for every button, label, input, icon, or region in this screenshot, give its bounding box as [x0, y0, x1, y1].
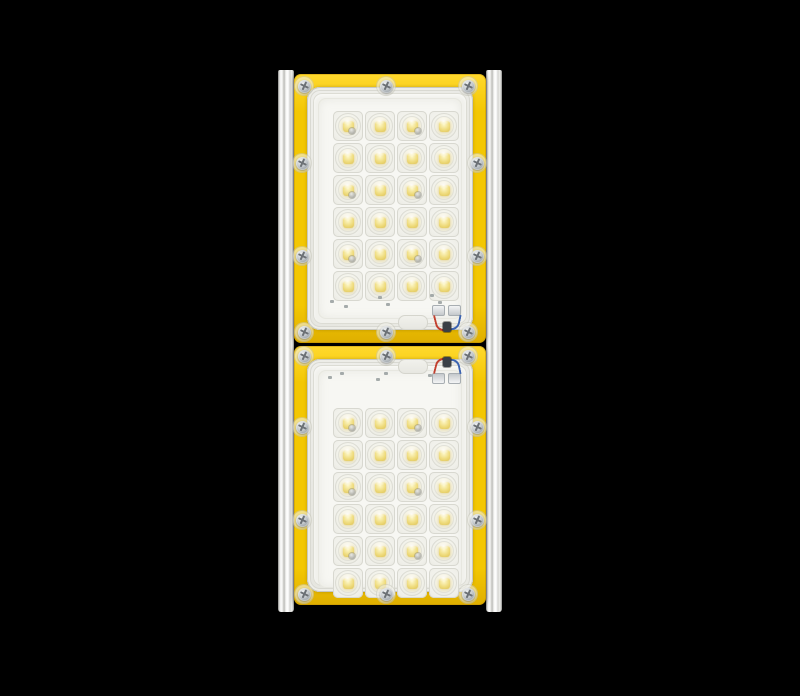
- screw: [459, 323, 477, 341]
- lens-highlight: [341, 213, 354, 221]
- screw: [293, 418, 311, 436]
- screw: [295, 323, 313, 341]
- lens-highlight: [437, 510, 450, 518]
- phillips-screw-icon: [296, 250, 309, 263]
- lens-highlight: [373, 574, 386, 582]
- screw: [377, 347, 395, 365]
- lens-highlight: [437, 149, 450, 157]
- lens-highlight: [405, 574, 418, 582]
- led-lens: [365, 472, 395, 502]
- smd-component: [386, 303, 390, 306]
- lens-highlight: [373, 149, 386, 157]
- lens-highlight: [373, 446, 386, 454]
- led-lens: [333, 504, 363, 534]
- lens-highlight: [405, 277, 418, 285]
- screw: [468, 247, 486, 265]
- screw: [377, 77, 395, 95]
- led-lens: [397, 175, 427, 205]
- screw: [468, 154, 486, 172]
- led-lens: [429, 408, 459, 438]
- led-lens: [333, 568, 363, 598]
- phillips-screw-icon: [380, 326, 393, 339]
- screw: [295, 77, 313, 95]
- lens-highlight: [437, 542, 450, 550]
- led-lens: [429, 175, 459, 205]
- pcb-rivet: [415, 128, 421, 134]
- screw: [295, 347, 313, 365]
- phillips-screw-icon: [471, 157, 484, 170]
- led-lens: [365, 143, 395, 173]
- phillips-screw-icon: [296, 157, 309, 170]
- led-lens: [365, 440, 395, 470]
- led-lens: [397, 271, 427, 301]
- pcb-rivet: [415, 425, 421, 431]
- phillips-screw-icon: [298, 350, 311, 363]
- smd-component: [344, 305, 348, 308]
- led-lens: [397, 472, 427, 502]
- led-pcb: [318, 98, 462, 319]
- lens-highlight: [437, 213, 450, 221]
- led-lens: [365, 536, 395, 566]
- phillips-screw-icon: [296, 514, 309, 527]
- lens-highlight: [437, 414, 450, 422]
- led-lens: [397, 440, 427, 470]
- phillips-screw-icon: [471, 250, 484, 263]
- screw: [293, 154, 311, 172]
- smd-component: [378, 296, 382, 299]
- heatsink-rail-right: [486, 70, 502, 612]
- photo-stage: [0, 0, 800, 696]
- pcb-rivet: [349, 256, 355, 262]
- lens-highlight: [437, 117, 450, 125]
- led-lens: [397, 504, 427, 534]
- phillips-screw-icon: [462, 588, 475, 601]
- led-lens: [333, 239, 363, 269]
- screw: [468, 418, 486, 436]
- screw: [377, 323, 395, 341]
- lens-highlight: [437, 478, 450, 486]
- lens-highlight: [437, 446, 450, 454]
- smd-component: [340, 372, 344, 375]
- screw: [377, 585, 395, 603]
- heatsink-rail-left: [278, 70, 294, 612]
- lens-highlight: [341, 277, 354, 285]
- led-lens: [429, 504, 459, 534]
- led-lens: [429, 568, 459, 598]
- led-lens: [429, 239, 459, 269]
- lens-cover: [307, 359, 473, 592]
- led-lens: [397, 536, 427, 566]
- phillips-screw-icon: [298, 80, 311, 93]
- pcb-rivet: [349, 553, 355, 559]
- phillips-screw-icon: [380, 588, 393, 601]
- pcb-rivet: [349, 192, 355, 198]
- lens-highlight: [341, 245, 354, 253]
- led-lens: [365, 504, 395, 534]
- phillips-screw-icon: [462, 326, 475, 339]
- led-lens: [429, 472, 459, 502]
- pcb-rivet: [415, 256, 421, 262]
- lens-highlight: [405, 542, 418, 550]
- lens-highlight: [405, 446, 418, 454]
- smd-component: [384, 372, 388, 375]
- led-lens: [333, 536, 363, 566]
- lens-highlight: [341, 446, 354, 454]
- phillips-screw-icon: [296, 421, 309, 434]
- led-lens: [429, 207, 459, 237]
- lens-highlight: [405, 181, 418, 189]
- led-grid: [333, 408, 459, 598]
- led-lens: [365, 175, 395, 205]
- pcb-rivet: [349, 425, 355, 431]
- lens-highlight: [373, 213, 386, 221]
- lens-highlight: [437, 574, 450, 582]
- screw: [459, 77, 477, 95]
- smd-component: [376, 378, 380, 381]
- lens-highlight: [437, 277, 450, 285]
- led-lens: [333, 472, 363, 502]
- pcb-rivet: [415, 553, 421, 559]
- phillips-screw-icon: [298, 326, 311, 339]
- phillips-screw-icon: [298, 588, 311, 601]
- phillips-screw-icon: [380, 80, 393, 93]
- screw: [293, 511, 311, 529]
- lens-highlight: [405, 213, 418, 221]
- screw: [295, 585, 313, 603]
- pcb-rivet: [349, 128, 355, 134]
- lens-highlight: [373, 117, 386, 125]
- led-lens: [333, 207, 363, 237]
- lens-highlight: [373, 181, 386, 189]
- led-lens: [397, 408, 427, 438]
- led-lens: [333, 175, 363, 205]
- lens-highlight: [405, 117, 418, 125]
- led-lens: [397, 568, 427, 598]
- smd-component: [330, 300, 334, 303]
- wire-connector: [443, 357, 451, 367]
- smd-component: [328, 376, 332, 379]
- led-lens: [365, 111, 395, 141]
- led-lens: [365, 239, 395, 269]
- led-lens: [397, 239, 427, 269]
- led-lens: [333, 408, 363, 438]
- screw: [468, 511, 486, 529]
- led-lens: [397, 111, 427, 141]
- led-grid: [333, 111, 459, 301]
- lens-highlight: [405, 478, 418, 486]
- lens-highlight: [373, 542, 386, 550]
- phillips-screw-icon: [462, 80, 475, 93]
- led-lens: [429, 143, 459, 173]
- led-luminaire: [278, 70, 502, 612]
- led-lens: [365, 408, 395, 438]
- lens-highlight: [437, 245, 450, 253]
- pcb-rivet: [415, 489, 421, 495]
- screw: [459, 347, 477, 365]
- wire-connector: [443, 322, 451, 332]
- lens-highlight: [405, 510, 418, 518]
- smd-component: [430, 294, 434, 297]
- lens-cover: [307, 87, 473, 330]
- led-lens: [429, 440, 459, 470]
- screw: [459, 585, 477, 603]
- lens-highlight: [373, 510, 386, 518]
- lens-highlight: [341, 478, 354, 486]
- screw: [293, 247, 311, 265]
- lens-highlight: [341, 117, 354, 125]
- led-module-top: [294, 74, 486, 343]
- phillips-screw-icon: [471, 514, 484, 527]
- led-lens: [333, 271, 363, 301]
- led-lens: [365, 207, 395, 237]
- lens-highlight: [341, 510, 354, 518]
- cable-recess: [398, 359, 428, 374]
- phillips-screw-icon: [380, 350, 393, 363]
- lens-highlight: [341, 542, 354, 550]
- lens-highlight: [405, 149, 418, 157]
- lens-highlight: [373, 414, 386, 422]
- led-module-bottom: [294, 346, 486, 605]
- led-lens: [333, 440, 363, 470]
- lens-highlight: [373, 277, 386, 285]
- lens-highlight: [437, 181, 450, 189]
- pcb-rivet: [415, 192, 421, 198]
- phillips-screw-icon: [471, 421, 484, 434]
- lens-highlight: [341, 574, 354, 582]
- pcb-rivet: [349, 489, 355, 495]
- led-lens: [397, 207, 427, 237]
- cable-recess: [398, 315, 428, 330]
- lens-highlight: [405, 414, 418, 422]
- lens-highlight: [373, 245, 386, 253]
- led-lens: [333, 111, 363, 141]
- led-lens: [397, 143, 427, 173]
- lens-highlight: [405, 245, 418, 253]
- led-lens: [429, 111, 459, 141]
- led-pcb: [318, 370, 462, 588]
- lens-highlight: [341, 414, 354, 422]
- lens-highlight: [341, 181, 354, 189]
- led-lens: [333, 143, 363, 173]
- lens-highlight: [373, 478, 386, 486]
- lens-highlight: [341, 149, 354, 157]
- led-lens: [429, 536, 459, 566]
- phillips-screw-icon: [462, 350, 475, 363]
